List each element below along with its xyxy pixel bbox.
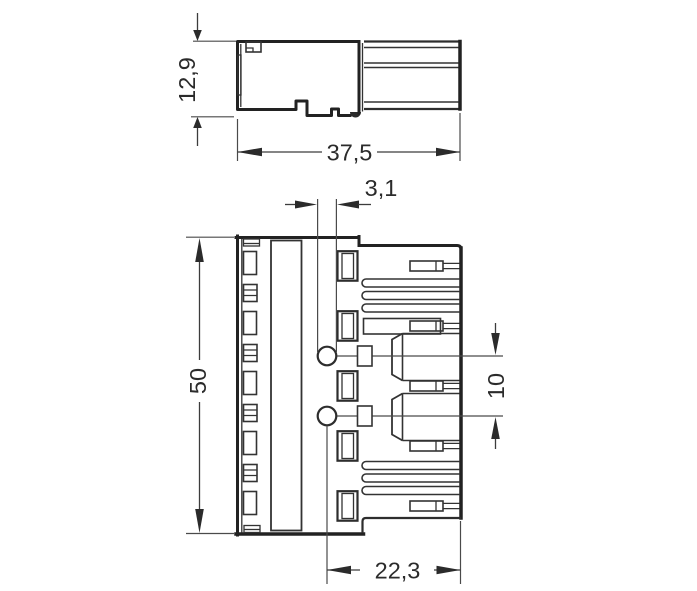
- bar-body: [410, 501, 443, 511]
- contact-openings: [338, 251, 358, 521]
- fin: [362, 474, 460, 482]
- contact-bar: [410, 501, 460, 511]
- connector-dimension-drawing: 12,9 37,5: [0, 0, 697, 591]
- latch-slot: [244, 492, 257, 515]
- vent-slot: [244, 465, 258, 482]
- dim-label-front-height: 50: [185, 368, 211, 394]
- opening-frame: [338, 251, 358, 281]
- vent-frame: [244, 465, 258, 482]
- arrowhead-right: [437, 566, 461, 575]
- vent-frame: [244, 345, 258, 362]
- contact-bar: [410, 321, 460, 331]
- opening-contact: [342, 374, 354, 399]
- fin: [362, 304, 460, 312]
- bar-ext: [443, 443, 460, 448]
- shroud-face: [392, 394, 403, 441]
- vent-slot: [244, 285, 258, 302]
- shroud-lines: [403, 394, 460, 441]
- keying-square-lower: [358, 406, 373, 426]
- opening-frame: [338, 371, 358, 401]
- opening-contact: [342, 434, 354, 459]
- pin-shroud-upper: [392, 334, 460, 381]
- vent-slot: [244, 345, 258, 362]
- dim-side-height: 12,9: [174, 13, 236, 146]
- dim-side-width: 37,5: [238, 113, 461, 166]
- dim-front-height: 50: [185, 237, 234, 533]
- latch-slot: [244, 252, 257, 275]
- dim-label-side-width: 37,5: [327, 140, 373, 166]
- pin-hole-circle: [318, 347, 337, 366]
- contact-opening: [338, 251, 358, 281]
- arrowhead-down: [193, 30, 202, 41]
- bar-ext: [443, 383, 460, 388]
- vent-frame: [244, 405, 258, 422]
- fin: [362, 462, 460, 470]
- side-wall-slot: [238, 55, 241, 95]
- front-view: [236, 236, 503, 535]
- fin-group-top: [362, 279, 460, 312]
- fin: [362, 487, 460, 495]
- side-vent-slots: [244, 285, 258, 482]
- arrowhead-left: [327, 566, 351, 575]
- pin-shroud-lower: [392, 394, 460, 441]
- bar-ext: [443, 263, 460, 268]
- arrowhead-up: [195, 238, 204, 262]
- bar-ext: [443, 503, 460, 508]
- dim-pin-spacing: 10: [483, 323, 509, 449]
- bar-body: [410, 261, 443, 271]
- front-plug-step-top: [359, 237, 461, 250]
- contact-bar: [410, 441, 460, 451]
- arrowhead-down: [195, 509, 204, 533]
- opening-contact: [342, 314, 354, 339]
- latch-slot: [244, 372, 257, 395]
- contact-opening: [338, 491, 358, 521]
- bar-body: [410, 381, 443, 391]
- bar-body: [410, 441, 443, 451]
- latch-slot: [244, 432, 257, 455]
- arrowhead-left: [337, 201, 359, 209]
- opening-contact: [342, 254, 354, 279]
- opening-frame: [338, 491, 358, 521]
- arrowhead-left: [238, 148, 263, 157]
- contact-bar: [410, 381, 460, 391]
- front-plug-bottom-edge: [363, 518, 462, 533]
- pin-hole-circle: [318, 407, 337, 426]
- vent-lines: [244, 410, 258, 416]
- dim-label-hole-diameter: 3,1: [365, 175, 398, 201]
- dim-label-pin-spacing: 10: [483, 373, 509, 399]
- dim-label-side-height: 12,9: [174, 57, 200, 103]
- side-plug-outline: [364, 42, 460, 110]
- contact-opening: [338, 371, 358, 401]
- vent-frame: [244, 285, 258, 302]
- marker-panel: [271, 241, 302, 531]
- dim-label-plug-width: 22,3: [375, 558, 421, 584]
- shroud-lines: [403, 334, 460, 381]
- fin-group-bottom: [362, 462, 460, 495]
- dim-plug-width: 22,3: [327, 426, 461, 584]
- arrowhead-right: [436, 148, 460, 157]
- arrowhead-right: [295, 201, 317, 209]
- opening-frame: [338, 311, 358, 341]
- vent-lines: [244, 290, 258, 296]
- bar-ext: [443, 323, 460, 328]
- keying-square-upper: [358, 346, 373, 366]
- vent-lines: [244, 350, 258, 356]
- vent-slot: [244, 405, 258, 422]
- contact-opening: [338, 311, 358, 341]
- opening-contact: [342, 494, 354, 519]
- shroud-face: [392, 334, 403, 381]
- bar-body: [410, 321, 443, 331]
- arrowhead-up: [193, 117, 202, 128]
- contact-bar: [410, 261, 460, 271]
- opening-frame: [338, 431, 358, 461]
- arrowhead-up: [491, 417, 500, 439]
- side-view: [238, 42, 461, 118]
- vent-lines: [244, 470, 258, 476]
- fin: [362, 279, 460, 287]
- fin: [362, 292, 460, 300]
- arrowhead-down: [491, 333, 500, 355]
- technical-drawing-sheet: 12,9 37,5: [0, 0, 697, 591]
- contact-opening: [338, 431, 358, 461]
- wall-notch-top: [244, 239, 260, 246]
- latch-slot: [244, 312, 257, 335]
